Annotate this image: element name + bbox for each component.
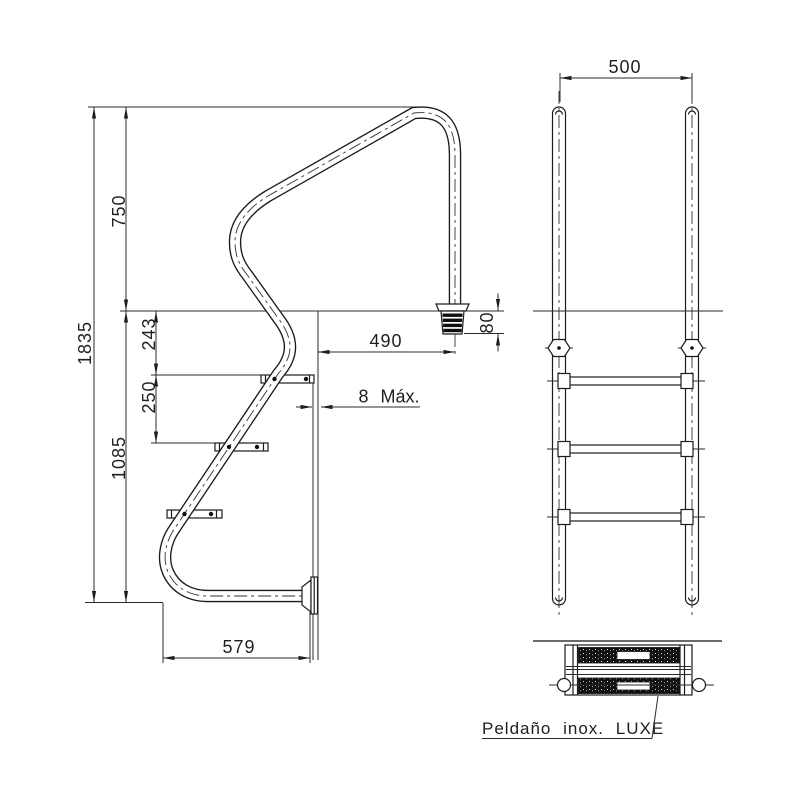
handrail-centerline [165, 113, 455, 596]
dim-horizontal-reach-label: 490 [369, 331, 402, 351]
anchor-clamp-left [545, 340, 573, 357]
step-detail: Peldaño inox. LUXE [482, 641, 722, 739]
dim-anchor-embed-depth: 80 [477, 294, 498, 352]
flange-cone [302, 580, 311, 612]
dim-step-spacing-label: 250 [139, 380, 159, 413]
dim-wall-clearance: 8 Máx. [296, 387, 420, 408]
rung-1 [547, 374, 705, 389]
dim-base-depth: 579 [163, 637, 310, 658]
anchor-clamp-right [678, 340, 706, 357]
step-tube-section-left [558, 679, 571, 692]
dim-anchor-embed-depth-label: 80 [477, 311, 497, 333]
dim-step-spacing: 250 [139, 375, 159, 443]
dim-overall-height: 1835 [75, 107, 95, 603]
rung-3 [547, 510, 705, 525]
tube-end-plugs [556, 111, 696, 601]
handrail-inner [165, 113, 455, 596]
dim-rail-spacing: 500 [560, 57, 692, 102]
anchor-escutcheon [436, 304, 469, 311]
drawing-sheet: 1835 750 1085 243 250 490 80 [0, 0, 800, 800]
dim-wall-clearance-label: 8 Máx. [358, 387, 419, 407]
dim-water-to-first-step-label: 243 [139, 317, 159, 350]
wall-flange [302, 577, 318, 614]
handrail-tube [165, 113, 455, 596]
deck-anchor [436, 304, 469, 354]
dim-height-above-water: 750 [109, 107, 129, 311]
step-tube-section-right [693, 679, 706, 692]
dim-rail-spacing-label: 500 [608, 57, 641, 77]
dim-height-above-water-label: 750 [109, 194, 129, 227]
antislip-strip-top [579, 648, 680, 664]
pool-ladder-technical-drawing: 1835 750 1085 243 250 490 80 [0, 0, 800, 800]
step-detail-label: Peldaño inox. LUXE [482, 719, 664, 738]
dim-height-below-water-label: 1085 [109, 436, 129, 480]
antislip-strip-bottom [579, 678, 680, 694]
dim-overall-height-label: 1835 [75, 321, 95, 365]
dim-horizontal-reach: 490 [318, 331, 455, 352]
dim-height-below-water: 1085 [109, 311, 129, 603]
dim-base-depth-label: 579 [222, 637, 255, 657]
dim-water-to-first-step: 243 [139, 311, 159, 375]
handrail-outer [165, 113, 455, 596]
front-view: 500 [533, 57, 723, 617]
rung-2 [547, 442, 705, 457]
